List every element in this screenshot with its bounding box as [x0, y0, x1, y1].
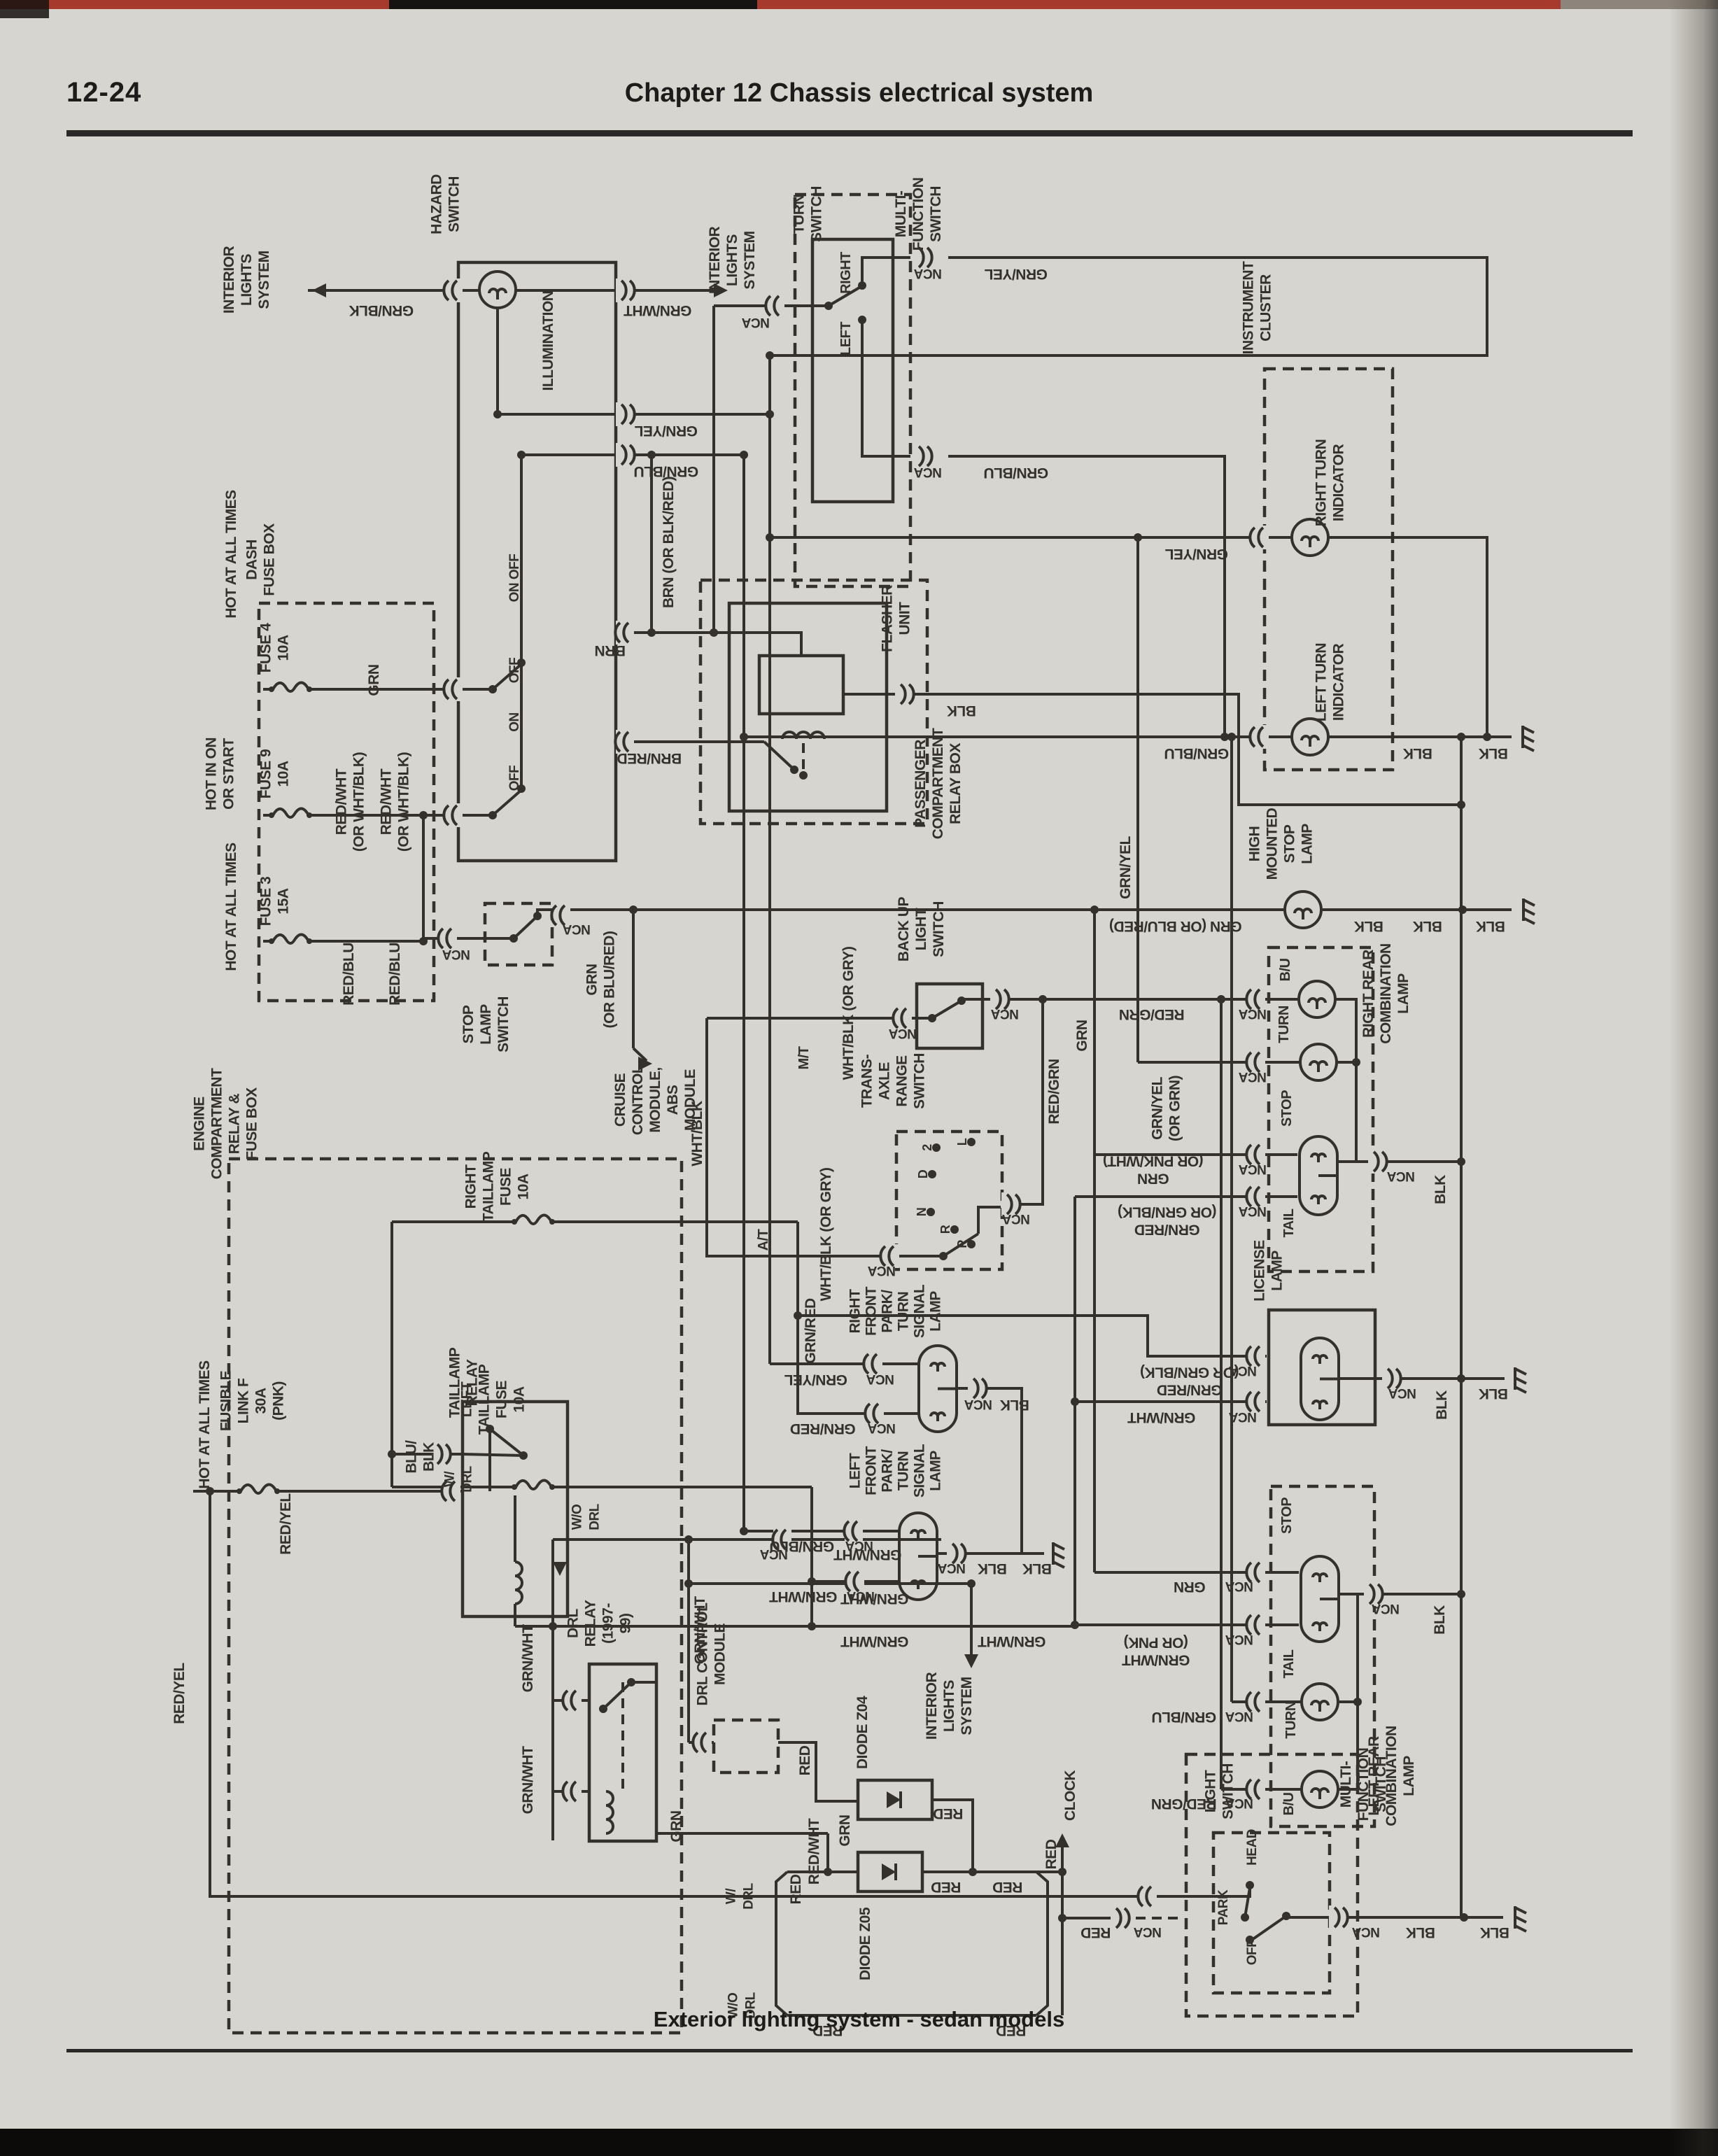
- fuse-terminal: [549, 1219, 555, 1225]
- bulb-filament: [1310, 1062, 1327, 1072]
- label-line: NCA: [888, 1026, 916, 1041]
- label-line: AXLE: [877, 1062, 893, 1101]
- label-line: RIGHT TURN: [1314, 439, 1330, 527]
- component-label: GRN: [837, 1815, 853, 1846]
- label-line: 2: [920, 1144, 934, 1151]
- component-label: BLK: [1434, 1390, 1450, 1420]
- junction-dot: [766, 410, 774, 418]
- wire-label: NCA: [759, 1546, 787, 1561]
- component-label: ON: [507, 712, 522, 732]
- drl-relay-label: DRLRELAY(1997-99): [565, 1600, 634, 1647]
- component-label: GRN/WHT: [520, 1746, 536, 1814]
- component-label: WHT/BLK (OR GRY): [818, 1168, 834, 1302]
- label-line: MODULE,: [647, 1067, 663, 1132]
- label-line: NCA: [1238, 1006, 1266, 1021]
- multi-function-switch-bottom-label: MULTI-FUNCTIONSWITCH: [1338, 1748, 1389, 1822]
- bulb-filament: [489, 289, 506, 300]
- label-line: NCA: [741, 315, 769, 330]
- label-line: LEFT: [838, 322, 854, 355]
- label-line: B/U: [1278, 958, 1293, 981]
- label-line: RED/WHT: [806, 1818, 822, 1884]
- label-line: SWITCH: [446, 176, 463, 232]
- label-line: WHT/BLK (OR GRY): [818, 1168, 834, 1302]
- component-label: STOP: [1279, 1498, 1295, 1534]
- junction-dot: [1071, 1397, 1079, 1406]
- label-line: FUSE 4: [258, 623, 274, 672]
- label-line: DIODE Z05: [857, 1907, 873, 1980]
- wire-label: GRN/WHT: [769, 1588, 837, 1605]
- label-line: OFF: [507, 766, 522, 791]
- component-label: ON OFF: [507, 554, 522, 603]
- relay-coil: [515, 1562, 522, 1604]
- wire-label: GRN/BLU: [1164, 745, 1229, 761]
- label-line: BLK: [1406, 1924, 1435, 1940]
- label-line: GRN (OR BLU/RED): [1109, 918, 1241, 934]
- label-line: TURN: [1276, 1006, 1292, 1043]
- wire-label: BLK: [1479, 1386, 1508, 1402]
- switch-blade: [1252, 1916, 1286, 1940]
- wire-label: NCA: [1228, 1409, 1256, 1424]
- label-line: FUSE 3: [258, 877, 274, 926]
- junction-dot: [1353, 1698, 1362, 1706]
- junction-dot: [824, 302, 833, 310]
- wire-label: RED: [992, 1879, 1022, 1895]
- label-line: COMPARTMENT: [209, 1068, 225, 1179]
- switch-blade: [490, 1429, 523, 1456]
- label-line: LEFT: [847, 1453, 864, 1488]
- hazard-switch-label: HAZARDSWITCH: [429, 174, 463, 234]
- wire-label: NCA: [1133, 1924, 1161, 1939]
- component-label: GRN/RED: [803, 1298, 819, 1364]
- wire-label: GRN/YEL: [634, 423, 698, 439]
- label-line: RELAY &: [227, 1093, 243, 1154]
- fuse-terminal: [512, 1219, 517, 1225]
- high-mounted-stop-lamp-label: HIGHMOUNTEDSTOPLAMP: [1247, 808, 1316, 880]
- junction-dot: [766, 533, 774, 542]
- label-line: CONTROL: [630, 1064, 646, 1135]
- bottom-scan-bar: [0, 2129, 1718, 2156]
- component-label: TAIL: [1281, 1649, 1297, 1678]
- wire-label: NCA: [1371, 1601, 1399, 1616]
- label-line: GRN/RED: [1134, 1222, 1200, 1238]
- wire-label: GRN/YEL: [784, 1372, 847, 1388]
- fuse-9-label: FUSE 910A: [258, 749, 292, 799]
- fuse-terminal: [307, 686, 312, 692]
- wire-label: RED/GRN: [1151, 1796, 1216, 1812]
- wire-label: NCA: [964, 1397, 992, 1411]
- wire-label: NCA: [1225, 1632, 1253, 1647]
- flow-arrow: [553, 1562, 567, 1576]
- junction-dot: [647, 451, 656, 459]
- label-line: 10A: [512, 1386, 528, 1412]
- label-line: CLUSTER: [1258, 274, 1274, 341]
- wire-label: GRN/WHT: [624, 302, 691, 318]
- label-line: NCA: [1238, 1162, 1266, 1176]
- wire-label: GRN(OR PNK/WHT): [1103, 1153, 1203, 1187]
- fuse-4-label: FUSE 410A: [258, 623, 292, 672]
- bulb-filament: [1302, 736, 1318, 747]
- label-line: COMBINATION: [1378, 943, 1394, 1043]
- label-line: STOP: [460, 1005, 477, 1043]
- junction-dot: [627, 1678, 635, 1686]
- label-line: FUSE BOX: [262, 523, 278, 596]
- junction-dot: [419, 811, 428, 819]
- label-line: INSTRUMENT: [1241, 261, 1257, 354]
- wire: [862, 258, 910, 286]
- label-line: GRN/BLU: [984, 465, 1048, 481]
- component-label: HEAD: [1245, 1829, 1260, 1866]
- multi-function-switch-top-label: MULTI-FUNCTIONSWITCH: [893, 178, 944, 251]
- label-line: LAMP: [1401, 1756, 1417, 1796]
- wire-label: GRN/WHT: [840, 1633, 908, 1649]
- interior-lights-system-top-label: INTERIORLIGHTSSYSTEM: [707, 227, 758, 295]
- book-page-edge: [1669, 0, 1718, 2156]
- label-line: GRN/WHT: [769, 1588, 837, 1605]
- label-line: TRANS-: [859, 1054, 875, 1108]
- component-label: P: [955, 1240, 969, 1248]
- junction-dot: [1457, 1374, 1465, 1383]
- bulb-filament: [1311, 1701, 1328, 1712]
- label-line: GRN: [584, 964, 600, 995]
- label-line: NCA: [867, 1263, 895, 1278]
- junction-dot: [808, 1622, 816, 1630]
- label-line: RELAY BOX: [948, 743, 964, 824]
- junction-dot: [1282, 1912, 1290, 1920]
- label-line: GRN/YEL: [634, 423, 698, 439]
- label-line: INDICATOR: [1331, 444, 1347, 522]
- label-line: FUSIBLE: [218, 1370, 234, 1431]
- label-line: LINK F: [236, 1378, 252, 1423]
- component-label: RED: [788, 1874, 804, 1904]
- illumination-label: ILLUMINATION: [540, 291, 556, 391]
- component-label: RED/YEL: [278, 1493, 294, 1555]
- label-line: SWITCH: [495, 996, 512, 1052]
- label-line: PARK: [1216, 1889, 1231, 1925]
- fuse-terminal: [269, 686, 274, 692]
- wire-label: NCA: [1238, 1069, 1266, 1084]
- junction-dot: [1038, 995, 1047, 1003]
- label-line: DRL: [565, 1609, 582, 1638]
- junction-dot: [629, 906, 638, 914]
- wire-label: GRN/WHT(OR PNK): [1122, 1635, 1190, 1668]
- label-line: (OR PNK/WHT): [1103, 1153, 1203, 1169]
- wire-label: NCA: [913, 266, 941, 281]
- label-line: INTERIOR: [221, 246, 237, 314]
- hazard-switch-box: [458, 262, 616, 861]
- junction-dot: [647, 628, 656, 637]
- fuse-terminal: [269, 938, 274, 944]
- component-label: RED: [797, 1745, 813, 1775]
- footer-rule: [66, 2049, 1633, 2052]
- component-label: GRN: [366, 664, 382, 696]
- wire: [1328, 537, 1487, 737]
- wire-label: BLK: [1354, 918, 1383, 934]
- component-label: W/ODRL: [570, 1503, 603, 1530]
- clock-label: CLOCK: [1062, 1770, 1078, 1821]
- junction-dot: [794, 1311, 802, 1320]
- junction-dot: [517, 451, 526, 459]
- junction-dot: [808, 1577, 816, 1586]
- label-line: N: [915, 1208, 929, 1217]
- wire: [1036, 1872, 1048, 2015]
- label-line: LIGHT: [913, 908, 929, 950]
- label-line: BLK: [1479, 745, 1508, 761]
- label-line: BLK: [1403, 745, 1432, 761]
- junction-dot: [858, 281, 866, 290]
- junction-dot: [799, 771, 808, 780]
- junction-dot: [1071, 1621, 1079, 1629]
- wire-label: NCA: [867, 1421, 895, 1435]
- wire-label: BLK: [1000, 1397, 1029, 1413]
- label-line: NCA: [759, 1546, 787, 1561]
- label-line: NCA: [1225, 1709, 1253, 1724]
- junction-dot: [549, 1622, 557, 1630]
- junction-dot: [488, 685, 497, 693]
- label-line: UNIT: [897, 602, 913, 635]
- label-line: DRL: [588, 1503, 603, 1530]
- label-line: LAMP: [928, 1451, 944, 1491]
- wire-label: GRN/RED: [790, 1421, 856, 1437]
- wire-label: NCA: [1238, 1006, 1266, 1021]
- label-line: NCA: [866, 1372, 894, 1386]
- label-line: (OR WHT/BLK): [396, 752, 412, 852]
- label-line: GRN/BLU: [1152, 1709, 1216, 1725]
- component-label: TURN: [1276, 1006, 1292, 1043]
- label-line: 15A: [276, 888, 292, 914]
- label-line: GRN/YEL: [784, 1372, 847, 1388]
- label-line: STOP: [1282, 824, 1298, 863]
- label-line: TURN: [896, 1451, 912, 1491]
- label-line: TAIL: [1281, 1649, 1297, 1678]
- label-line: LIGHTS: [724, 234, 740, 286]
- label-line: FUSE: [494, 1381, 510, 1419]
- wire: [778, 1742, 858, 1801]
- wire-label: BLK: [1479, 745, 1508, 761]
- label-line: GRN/BLU: [1164, 745, 1229, 761]
- label-line: (OR PNK): [1124, 1635, 1188, 1651]
- wire-label: NCA: [1388, 1386, 1416, 1400]
- label-line: MULTI-: [1338, 1761, 1354, 1808]
- passenger-relay-box-label: PASSENGERCOMPARTMENTRELAY BOX: [913, 728, 964, 839]
- wire-label: BLK: [978, 1560, 1007, 1577]
- label-line: HOT AT ALL TIMES: [197, 1360, 213, 1489]
- label-line: WHT/BLK (OR GRY): [840, 947, 857, 1080]
- wire-label: NCA: [888, 1026, 916, 1041]
- component-label: RED/YEL: [171, 1663, 188, 1724]
- label-line: (1997-: [600, 1603, 617, 1644]
- component-label: D: [916, 1169, 930, 1178]
- component-label: TURN: [1283, 1701, 1299, 1739]
- label-line: SWITCH: [809, 186, 825, 242]
- label-line: GRN/WHT: [833, 1546, 901, 1563]
- wire-label: RED: [933, 1805, 963, 1822]
- fuse-terminal: [237, 1488, 242, 1494]
- wire-label: GRN/WHT: [978, 1633, 1045, 1649]
- junction-dot: [1458, 906, 1467, 914]
- label-line: GRN/WHT: [520, 1746, 536, 1814]
- label-line: LIGHTS: [941, 1680, 957, 1732]
- label-line: INTERIOR: [924, 1672, 940, 1740]
- dual-bulb-filament: [1311, 1196, 1325, 1204]
- label-line: SIGNAL: [912, 1444, 928, 1498]
- label-line: ON OFF: [507, 554, 522, 603]
- junction-dot: [1090, 906, 1099, 914]
- component-label: BLK: [1432, 1175, 1449, 1204]
- right-taillamp-fuse-label: RIGHTTAILLAMPFUSE10A: [463, 1151, 532, 1222]
- wire-label: NCA: [1228, 1363, 1256, 1378]
- junction-dot: [740, 733, 748, 741]
- engine-relay-box-outline: [229, 1159, 682, 2033]
- component-label: HOT AT ALL TIMES: [223, 490, 239, 619]
- component-label: OFF: [507, 766, 522, 791]
- wire-label: BLK: [1413, 918, 1442, 934]
- backup-light-switch-box: [917, 984, 983, 1048]
- label-line: L: [955, 1138, 969, 1146]
- wire-label: BLK: [1022, 1560, 1052, 1577]
- label-line: GRN: [1074, 1020, 1090, 1051]
- wire-label: GRN/RED(OR GRN/BLK): [1118, 1204, 1217, 1238]
- left-turn-indicator-label: LEFT TURNINDICATOR: [1314, 643, 1347, 721]
- component-label: BRN (OR BLK/RED): [661, 477, 677, 608]
- flasher-unit-label: FLASHERUNIT: [880, 585, 913, 652]
- junction-dot: [1227, 733, 1236, 741]
- junction-dot: [824, 1868, 832, 1876]
- transaxle-range-switch-label: TRANS-AXLERANGESWITCH: [859, 1053, 928, 1109]
- license-lamp-box: [1269, 1310, 1375, 1425]
- label-line: BRN: [595, 642, 626, 658]
- scanned-manual-page: 12-24 Chapter 12 Chassis electrical syst…: [0, 0, 1718, 2156]
- component-label: PARK: [1216, 1889, 1231, 1925]
- label-line: GRN: [668, 1810, 684, 1842]
- wire-label: NCA: [741, 315, 769, 330]
- label-line: BLU/: [404, 1440, 420, 1474]
- junction-dot: [519, 1451, 528, 1460]
- label-line: RIGHT: [463, 1164, 479, 1209]
- ground-symbol: [1053, 1542, 1064, 1567]
- label-line: OFF: [507, 658, 522, 684]
- label-line: RED: [933, 1805, 963, 1822]
- label-line: SYSTEM: [256, 251, 272, 309]
- fuse-terminal: [274, 1488, 280, 1494]
- stop-lamp-switch-label: STOPLAMPSWITCH: [460, 996, 512, 1052]
- wiring-diagram: INTERIORLIGHTSSYSTEMHAZARDSWITCHILLUMINA…: [0, 0, 1718, 2156]
- wire-label: BLK: [947, 703, 976, 719]
- interior-lights-system-bottom-label: INTERIORLIGHTSSYSTEM: [924, 1672, 975, 1740]
- junction-dot: [858, 316, 866, 324]
- label-line: SIGNAL: [912, 1284, 928, 1338]
- label-line: HOT AT ALL TIMES: [223, 843, 239, 971]
- diode-z04-label: DIODE Z04: [854, 1696, 871, 1769]
- label-line: GRN: [837, 1815, 853, 1846]
- component-label: RED/GRN: [1046, 1059, 1062, 1124]
- wire-label: GRN: [1174, 1579, 1205, 1595]
- label-line: BACK UP: [896, 896, 912, 961]
- interior-lights-system-left-label: INTERIORLIGHTSSYSTEM: [221, 246, 272, 314]
- label-line: WHT/BLK: [689, 1101, 705, 1167]
- label-line: P: [955, 1240, 969, 1248]
- label-line: NCA: [1238, 1204, 1266, 1218]
- relay-coil: [606, 1791, 613, 1833]
- bulb-filament: [1302, 537, 1318, 547]
- wire-label: NCA: [1001, 1211, 1029, 1226]
- wire-label: GRN/WHT: [1127, 1409, 1195, 1425]
- label-line: DRL: [460, 1465, 475, 1492]
- fuse-terminal: [549, 1484, 555, 1490]
- junction-dot: [1217, 995, 1225, 1003]
- label-line: (OR GRN/BLK): [1118, 1204, 1217, 1220]
- label-line: W/: [724, 1888, 739, 1904]
- label-line: MULTI-: [893, 190, 909, 237]
- label-line: (PNK): [271, 1381, 287, 1421]
- label-line: GRN/WHT: [520, 1624, 536, 1692]
- ground-symbol: [1523, 899, 1535, 924]
- component-label: OFF: [1245, 1940, 1260, 1966]
- label-line: RIGHT: [838, 252, 854, 294]
- junction-dot: [957, 996, 966, 1005]
- junction-dot: [1058, 1914, 1066, 1922]
- wire-label: NCA: [442, 947, 470, 961]
- instrument-cluster-label: INSTRUMENTCLUSTER: [1241, 261, 1274, 354]
- label-line: MODULE: [712, 1623, 728, 1685]
- wire-label: GRN/BLU: [1152, 1709, 1216, 1725]
- component-label: N: [915, 1208, 929, 1217]
- bulb-filament: [1311, 1789, 1328, 1799]
- label-line: NCA: [1238, 1069, 1266, 1084]
- cruise-control-label: CRUISECONTROLMODULE,ABSMODULE: [612, 1064, 698, 1135]
- label-line: DASH: [244, 540, 260, 580]
- wire-label: RED: [931, 1879, 961, 1895]
- label-line: ON: [507, 712, 522, 732]
- component-label: WHT/BLK (OR GRY): [840, 947, 857, 1080]
- junction-dot: [1134, 533, 1142, 542]
- label-line: TURN: [1283, 1701, 1299, 1739]
- label-line: (OR GRN): [1167, 1076, 1183, 1141]
- bulb-filament: [1295, 909, 1311, 920]
- label-line: GRN/WHT: [1127, 1409, 1195, 1425]
- fuse-3-label: FUSE 315A: [258, 877, 292, 926]
- label-line: NCA: [1225, 1796, 1253, 1810]
- label-line: HOT IN ON: [204, 738, 220, 810]
- label-line: BLK: [1434, 1390, 1450, 1420]
- wire-label: NCA: [1225, 1579, 1253, 1593]
- label-line: BLK: [1479, 1386, 1508, 1402]
- component-label: RED/BLU: [341, 943, 357, 1006]
- junction-dot: [1241, 1913, 1249, 1922]
- label-line: GRN/BLK: [349, 302, 414, 318]
- label-line: RED/YEL: [278, 1493, 294, 1555]
- ground-symbol: [1515, 1367, 1526, 1393]
- label-line: GRN/BLU: [634, 463, 698, 479]
- flow-arrow: [312, 283, 326, 297]
- component-label: OFF: [507, 658, 522, 684]
- label-line: 10A: [276, 635, 292, 661]
- label-line: BLK: [1413, 918, 1442, 934]
- label-line: RED/GRN: [1151, 1796, 1216, 1812]
- wire: [463, 1454, 523, 1456]
- junction-dot: [1457, 1590, 1465, 1598]
- label-line: NCA: [937, 1560, 965, 1575]
- label-line: PARK/: [880, 1290, 896, 1333]
- wire-label: NCA: [937, 1560, 965, 1575]
- junction-dot: [969, 1868, 977, 1876]
- wire-label: GRN/RED(OR GRN/BLK): [1141, 1365, 1239, 1398]
- component-label: RED/WHT(OR WHT/BLK): [379, 752, 412, 852]
- label-line: HOT AT ALL TIMES: [223, 490, 239, 619]
- label-line: HAZARD: [429, 174, 445, 234]
- label-line: LAMP: [928, 1291, 944, 1332]
- junction-dot: [1460, 1913, 1468, 1922]
- label-line: NCA: [1133, 1924, 1161, 1939]
